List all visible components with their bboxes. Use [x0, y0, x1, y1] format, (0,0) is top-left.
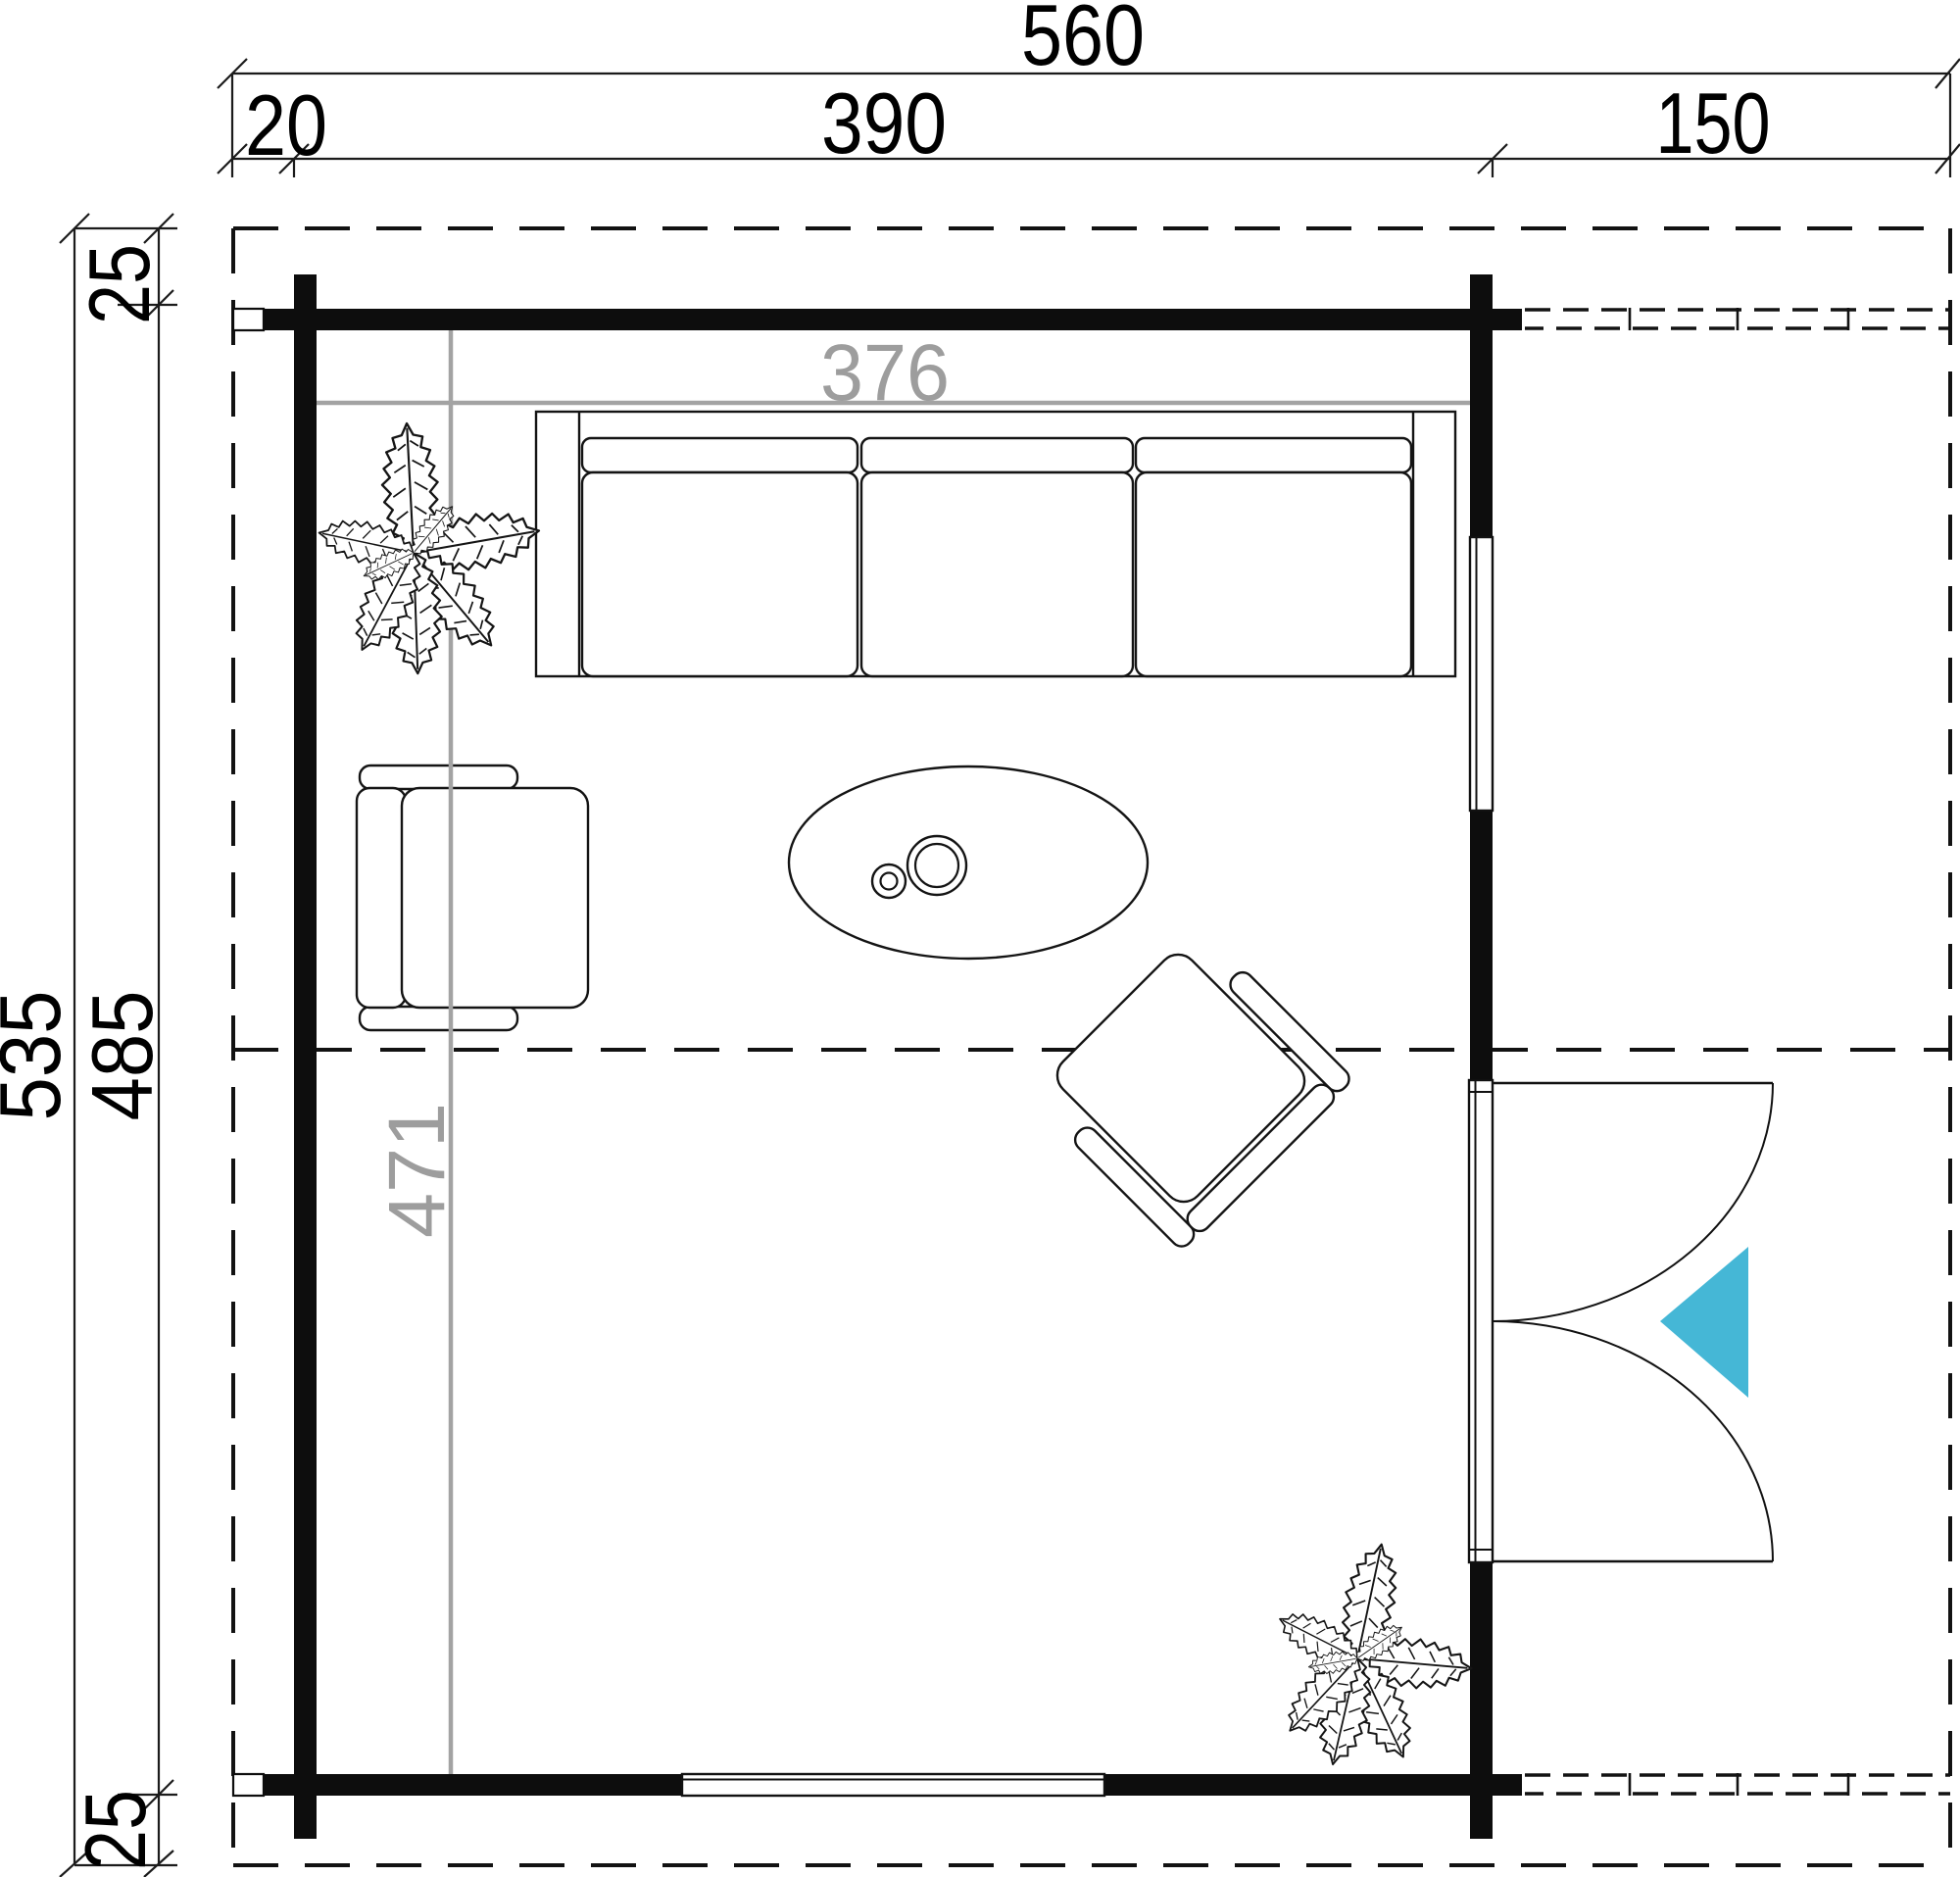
svg-text:471: 471 [372, 1103, 462, 1238]
svg-text:535: 535 [0, 991, 78, 1121]
svg-text:485: 485 [73, 991, 171, 1121]
svg-text:25: 25 [67, 1790, 164, 1870]
svg-text:25: 25 [71, 244, 168, 324]
svg-text:150: 150 [1656, 74, 1771, 172]
svg-text:390: 390 [821, 74, 947, 172]
svg-text:560: 560 [1021, 0, 1145, 83]
svg-text:20: 20 [245, 76, 327, 173]
svg-text:376: 376 [820, 328, 950, 418]
